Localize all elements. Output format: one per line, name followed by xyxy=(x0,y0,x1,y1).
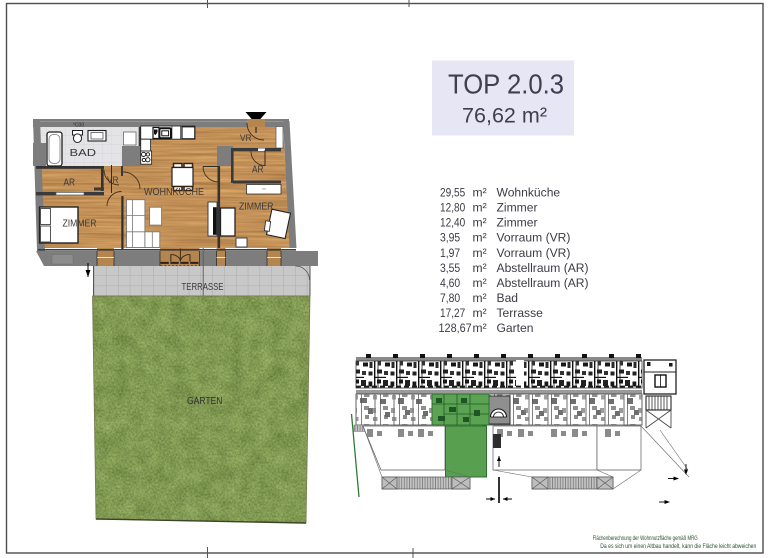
svg-text:VR: VR xyxy=(107,175,119,185)
svg-text:VR: VR xyxy=(240,133,252,143)
svg-text:12,40: 12,40 xyxy=(440,216,465,230)
svg-text:Zimmer: Zimmer xyxy=(497,201,538,215)
svg-text:m²: m² xyxy=(473,246,487,260)
svg-text:m²: m² xyxy=(473,201,487,215)
svg-text:ZIMMER: ZIMMER xyxy=(239,202,274,213)
svg-text:Garten: Garten xyxy=(497,321,534,335)
svg-text:4,60: 4,60 xyxy=(440,276,460,290)
svg-text:Flächenberechnung der Wohnnutz: Flächenberechnung der Wohnnutzfläche gem… xyxy=(593,535,698,542)
svg-text:17,27: 17,27 xyxy=(440,306,465,320)
svg-text:Bad: Bad xyxy=(497,291,519,305)
svg-text:12,80: 12,80 xyxy=(440,201,465,215)
svg-text:m²: m² xyxy=(473,321,487,335)
svg-text:128,67: 128,67 xyxy=(439,321,472,335)
svg-text:Vorraum (VR): Vorraum (VR) xyxy=(497,231,571,245)
svg-text:WOHNKÜCHE: WOHNKÜCHE xyxy=(144,186,204,198)
svg-text:BAD: BAD xyxy=(70,148,97,159)
svg-text:m²: m² xyxy=(473,291,487,305)
svg-text:GARTEN: GARTEN xyxy=(187,395,223,407)
svg-text:m²: m² xyxy=(473,306,487,320)
svg-text:ZIMMER: ZIMMER xyxy=(63,219,97,230)
svg-text:1,97: 1,97 xyxy=(440,246,460,260)
svg-text:m²: m² xyxy=(473,276,487,290)
svg-text:AR: AR xyxy=(252,165,264,176)
svg-text:m²: m² xyxy=(473,261,487,275)
svg-text:3,55: 3,55 xyxy=(440,261,460,275)
svg-text:3,95: 3,95 xyxy=(440,231,460,245)
svg-text:*C00: *C00 xyxy=(73,123,84,129)
svg-text:m²: m² xyxy=(473,231,487,245)
svg-text:Vorraum (VR): Vorraum (VR) xyxy=(497,246,571,260)
svg-text:TERRASSE: TERRASSE xyxy=(182,282,224,293)
svg-text:Wohnküche: Wohnküche xyxy=(497,186,561,200)
svg-text:7,80: 7,80 xyxy=(440,291,460,305)
svg-text:76,62 m²: 76,62 m² xyxy=(462,105,547,128)
svg-text:Abstellraum (AR): Abstellraum (AR) xyxy=(497,261,589,275)
svg-text:TOP 2.0.3: TOP 2.0.3 xyxy=(448,69,564,100)
svg-text:Terrasse: Terrasse xyxy=(497,306,544,320)
svg-text:Da es sich um einen Altbau han: Da es sich um einen Altbau handelt, kann… xyxy=(600,543,756,550)
svg-text:Zimmer: Zimmer xyxy=(497,216,538,230)
svg-text:Abstellraum (AR): Abstellraum (AR) xyxy=(497,276,589,290)
svg-text:AR: AR xyxy=(64,178,76,189)
svg-text:29,55: 29,55 xyxy=(440,186,465,200)
svg-text:m²: m² xyxy=(473,216,487,230)
svg-text:m²: m² xyxy=(473,186,487,200)
